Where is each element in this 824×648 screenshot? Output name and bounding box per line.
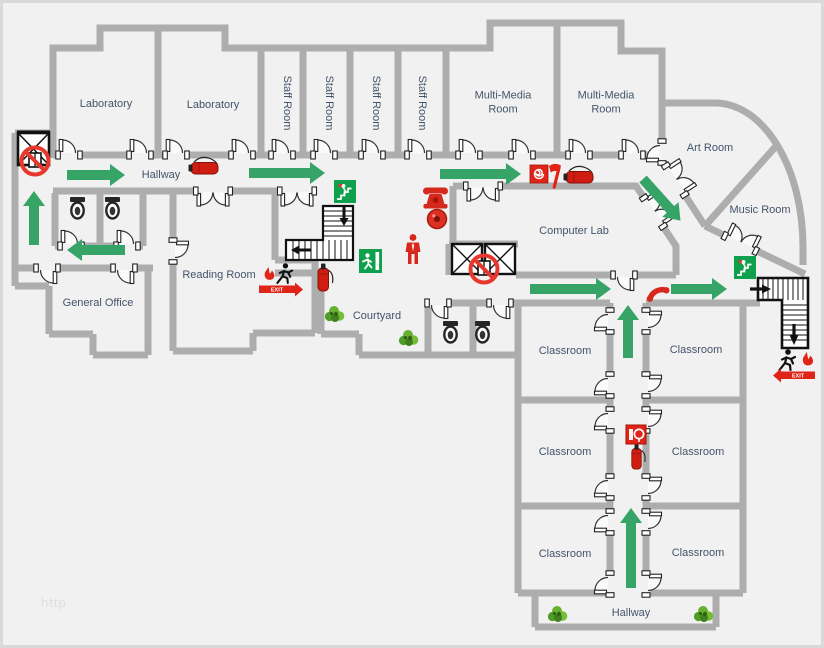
- evacuation-floor-plan: EXIT EXIT Laboratory Laboratory Staff Ro…: [0, 0, 824, 648]
- door-icon: [509, 140, 535, 160]
- stairs-icon: [286, 206, 353, 260]
- door-icon: [595, 407, 615, 433]
- door-icon: [611, 271, 637, 291]
- door-icon: [595, 571, 615, 597]
- toilet-icon: [70, 197, 85, 219]
- plant-icon: [694, 606, 713, 622]
- plant-icon: [399, 330, 418, 346]
- double-door-icon: [194, 187, 233, 206]
- door-icon: [311, 140, 337, 160]
- door-icon: [566, 140, 592, 160]
- door-icon: [269, 140, 295, 160]
- fire-extinguisher-icon: [318, 264, 333, 292]
- exit-stairs-sign-icon: [734, 256, 756, 279]
- door-icon: [642, 308, 662, 334]
- door-icon: [456, 140, 482, 160]
- exit-running-man-sign-icon: [359, 249, 382, 273]
- door-icon: [619, 140, 645, 160]
- route-arrow-icon: [440, 163, 521, 185]
- fire-extinguisher-icon: [189, 157, 219, 174]
- door-icon: [595, 372, 615, 398]
- double-door-icon: [661, 156, 698, 199]
- exit-label: EXIT: [792, 374, 805, 380]
- walls: [15, 23, 805, 627]
- plant-icon: [325, 306, 344, 322]
- door-icon: [487, 299, 513, 319]
- floor-plan-canvas: EXIT EXIT: [3, 3, 824, 648]
- double-door-icon: [464, 182, 503, 201]
- door-icon: [595, 474, 615, 500]
- door-icon: [642, 474, 662, 500]
- fire-alarm-call-point-icon: [530, 165, 548, 183]
- door-icon: [642, 372, 662, 398]
- exit-stairs-sign-icon: [334, 180, 356, 203]
- door-icon: [647, 139, 667, 165]
- route-arrow-icon: [249, 162, 325, 184]
- double-door-icon: [278, 187, 317, 206]
- toilet-icon: [443, 321, 458, 343]
- fire-alarm-bell-icon: [428, 210, 447, 229]
- door-icon: [595, 509, 615, 535]
- door-icon: [595, 308, 615, 334]
- route-arrow-icon: [617, 305, 639, 358]
- door-icon: [405, 140, 431, 160]
- route-arrow-icon: [620, 508, 642, 588]
- double-door-icon: [721, 221, 764, 255]
- toilet-icon: [475, 321, 490, 343]
- route-arrow-icon: [67, 164, 125, 186]
- emergency-exit-icon: EXIT: [259, 263, 303, 296]
- door-icon: [359, 140, 385, 160]
- door-icon: [229, 140, 255, 160]
- door-icon: [127, 140, 153, 160]
- toilet-icon: [105, 197, 120, 219]
- exit-label: EXIT: [271, 288, 284, 294]
- door-icon: [642, 509, 662, 535]
- door-icon: [169, 238, 189, 264]
- fire-extinguisher-icon: [564, 166, 594, 183]
- evacuee-person-icon: [406, 234, 421, 264]
- emergency-exit-icon: EXIT: [773, 349, 815, 382]
- door-icon: [34, 264, 60, 284]
- fire-hose-cabinet-icon: [626, 425, 646, 444]
- stairs-icon: [750, 278, 808, 348]
- door-icon: [111, 264, 137, 284]
- door-icon: [56, 140, 82, 160]
- route-arrow-icon: [530, 278, 611, 300]
- route-arrow-icon: [23, 191, 45, 245]
- evacuation-route-arrows: [23, 162, 727, 588]
- emergency-phone-icon: [423, 188, 448, 209]
- door-icon: [163, 140, 189, 160]
- plant-icon: [548, 606, 567, 622]
- route-arrow-icon: [671, 278, 727, 300]
